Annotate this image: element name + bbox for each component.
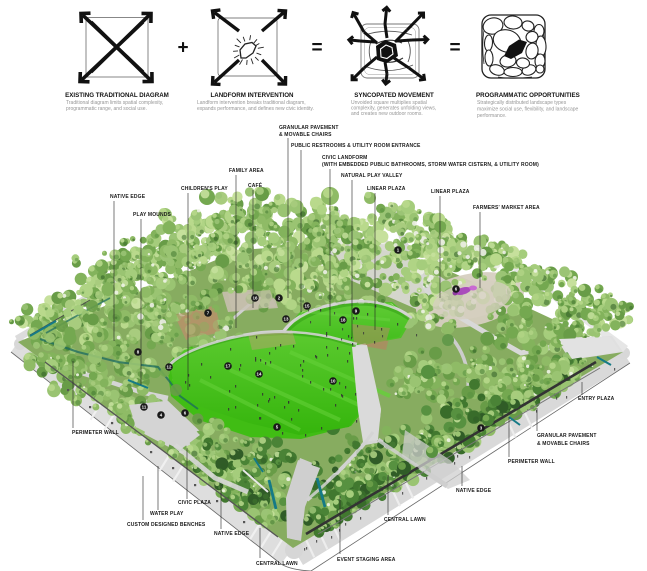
svg-text:CAFÉ: CAFÉ [248, 181, 263, 189]
svg-text:16: 16 [253, 296, 258, 301]
svg-text:EVENT STAGING AREA: EVENT STAGING AREA [337, 557, 396, 563]
svg-text:+: + [177, 38, 188, 59]
svg-text:NATIVE EDGE: NATIVE EDGE [456, 488, 492, 494]
svg-text:14: 14 [257, 372, 262, 377]
svg-text:PUBLIC RESTROOMS & UTILITY ROO: PUBLIC RESTROOMS & UTILITY ROOM ENTRANCE [291, 143, 421, 149]
svg-text:SYNCOPATED MOVEMENT: SYNCOPATED MOVEMENT [354, 92, 434, 99]
svg-text:maximize social use, flexibili: maximize social use, flexibility, and la… [477, 107, 579, 113]
svg-text:11: 11 [142, 405, 147, 410]
svg-text:EXISTING TRADITIONAL DIAGRAM: EXISTING TRADITIONAL DIAGRAM [65, 92, 169, 99]
svg-text:Strategically distributed land: Strategically distributed landscape type… [477, 100, 567, 106]
svg-text:performance.: performance. [477, 113, 506, 119]
svg-text:18: 18 [341, 318, 346, 323]
svg-text:LANDFORM INTERVENTION: LANDFORM INTERVENTION [210, 92, 294, 99]
svg-text:PERIMETER WALL: PERIMETER WALL [72, 430, 119, 436]
svg-text:CENTRAL LAWN: CENTRAL LAWN [256, 561, 298, 567]
svg-text:NATURAL PLAY VALLEY: NATURAL PLAY VALLEY [341, 173, 403, 179]
svg-text:(WITH EMBEDDED PUBLIC BATHROOM: (WITH EMBEDDED PUBLIC BATHROOMS, STORM W… [322, 162, 539, 168]
svg-text:FAMILY AREA: FAMILY AREA [229, 168, 264, 174]
svg-text:WATER PLAY: WATER PLAY [150, 511, 184, 517]
svg-text:NATIVE EDGE: NATIVE EDGE [214, 531, 250, 537]
svg-text:expands performance, and defin: expands performance, and defines new civ… [197, 106, 314, 112]
svg-text:GRANULAR PAVEMENT: GRANULAR PAVEMENT [279, 125, 339, 131]
svg-text:=: = [311, 38, 322, 59]
svg-text:PERIMETER WALL: PERIMETER WALL [508, 459, 555, 465]
svg-text:10: 10 [331, 379, 336, 384]
svg-text:12: 12 [167, 365, 172, 370]
svg-text:NATIVE EDGE: NATIVE EDGE [110, 194, 146, 200]
svg-text:CIVIC PLAZA: CIVIC PLAZA [178, 500, 211, 506]
svg-text:programmatic range, and social: programmatic range, and social use. [66, 106, 147, 112]
svg-text:ENTRY PLAZA: ENTRY PLAZA [578, 396, 615, 402]
svg-text:GRANULAR PAVEMENT: GRANULAR PAVEMENT [537, 433, 597, 439]
svg-text:CUSTOM DESIGNED BENCHES: CUSTOM DESIGNED BENCHES [127, 522, 206, 528]
svg-text:13: 13 [284, 317, 289, 322]
svg-text:PROGRAMMATIC OPPORTUNITIES: PROGRAMMATIC OPPORTUNITIES [476, 92, 580, 99]
svg-text:& MOVABLE CHAIRS: & MOVABLE CHAIRS [279, 132, 332, 138]
svg-text:CHILDREN'S PLAY: CHILDREN'S PLAY [181, 186, 228, 192]
svg-text:LINEAR PLAZA: LINEAR PLAZA [431, 189, 470, 195]
svg-text:& MOVABLE CHAIRS: & MOVABLE CHAIRS [537, 441, 590, 447]
svg-text:17: 17 [226, 364, 231, 369]
svg-text:LINEAR PLAZA: LINEAR PLAZA [367, 186, 406, 192]
svg-text:15: 15 [305, 304, 310, 309]
svg-text:FARMERS' MARKET AREA: FARMERS' MARKET AREA [473, 205, 540, 211]
svg-text:CENTRAL LAWN: CENTRAL LAWN [384, 517, 426, 523]
svg-text:and creates new outdoor rooms.: and creates new outdoor rooms. [351, 111, 423, 117]
svg-text:=: = [449, 38, 460, 59]
svg-text:CIVIC LANDFORM: CIVIC LANDFORM [322, 155, 367, 161]
svg-text:PLAY MOUNDS: PLAY MOUNDS [133, 212, 172, 218]
